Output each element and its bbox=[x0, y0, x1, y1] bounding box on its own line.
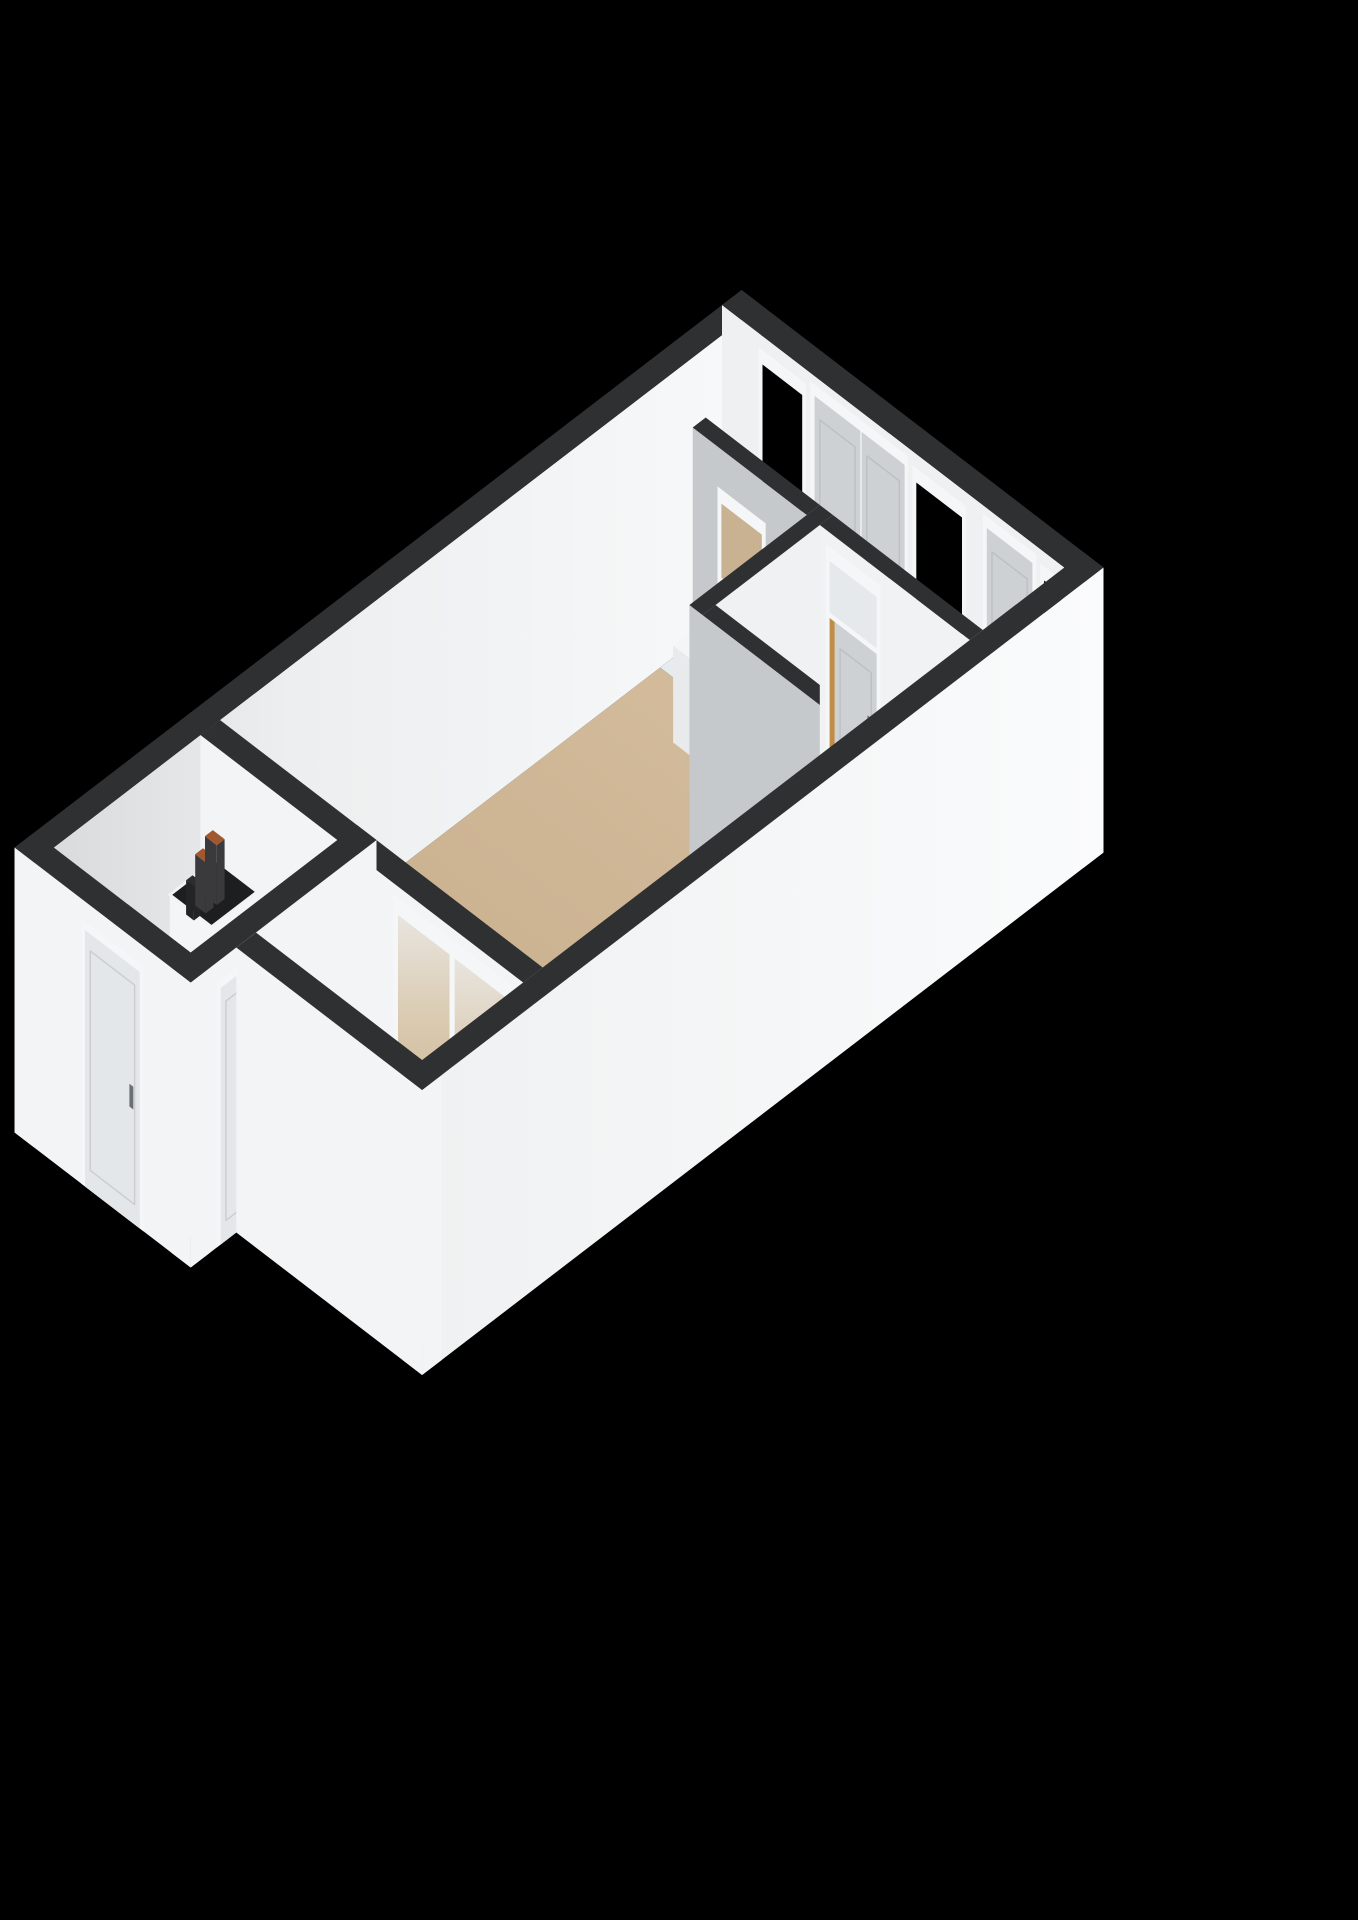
west-face bbox=[205, 836, 217, 905]
west-face bbox=[171, 968, 191, 1268]
floorplan-3d-svg bbox=[0, 0, 1358, 1920]
south-face bbox=[422, 1075, 442, 1375]
front-door bbox=[81, 919, 144, 1232]
floorplan-render-canvas bbox=[0, 0, 1358, 1920]
front-door-leaf bbox=[85, 930, 140, 1229]
south-face bbox=[217, 839, 225, 905]
west-face bbox=[186, 880, 194, 920]
west-face bbox=[195, 854, 206, 913]
door-handle bbox=[129, 1084, 133, 1110]
